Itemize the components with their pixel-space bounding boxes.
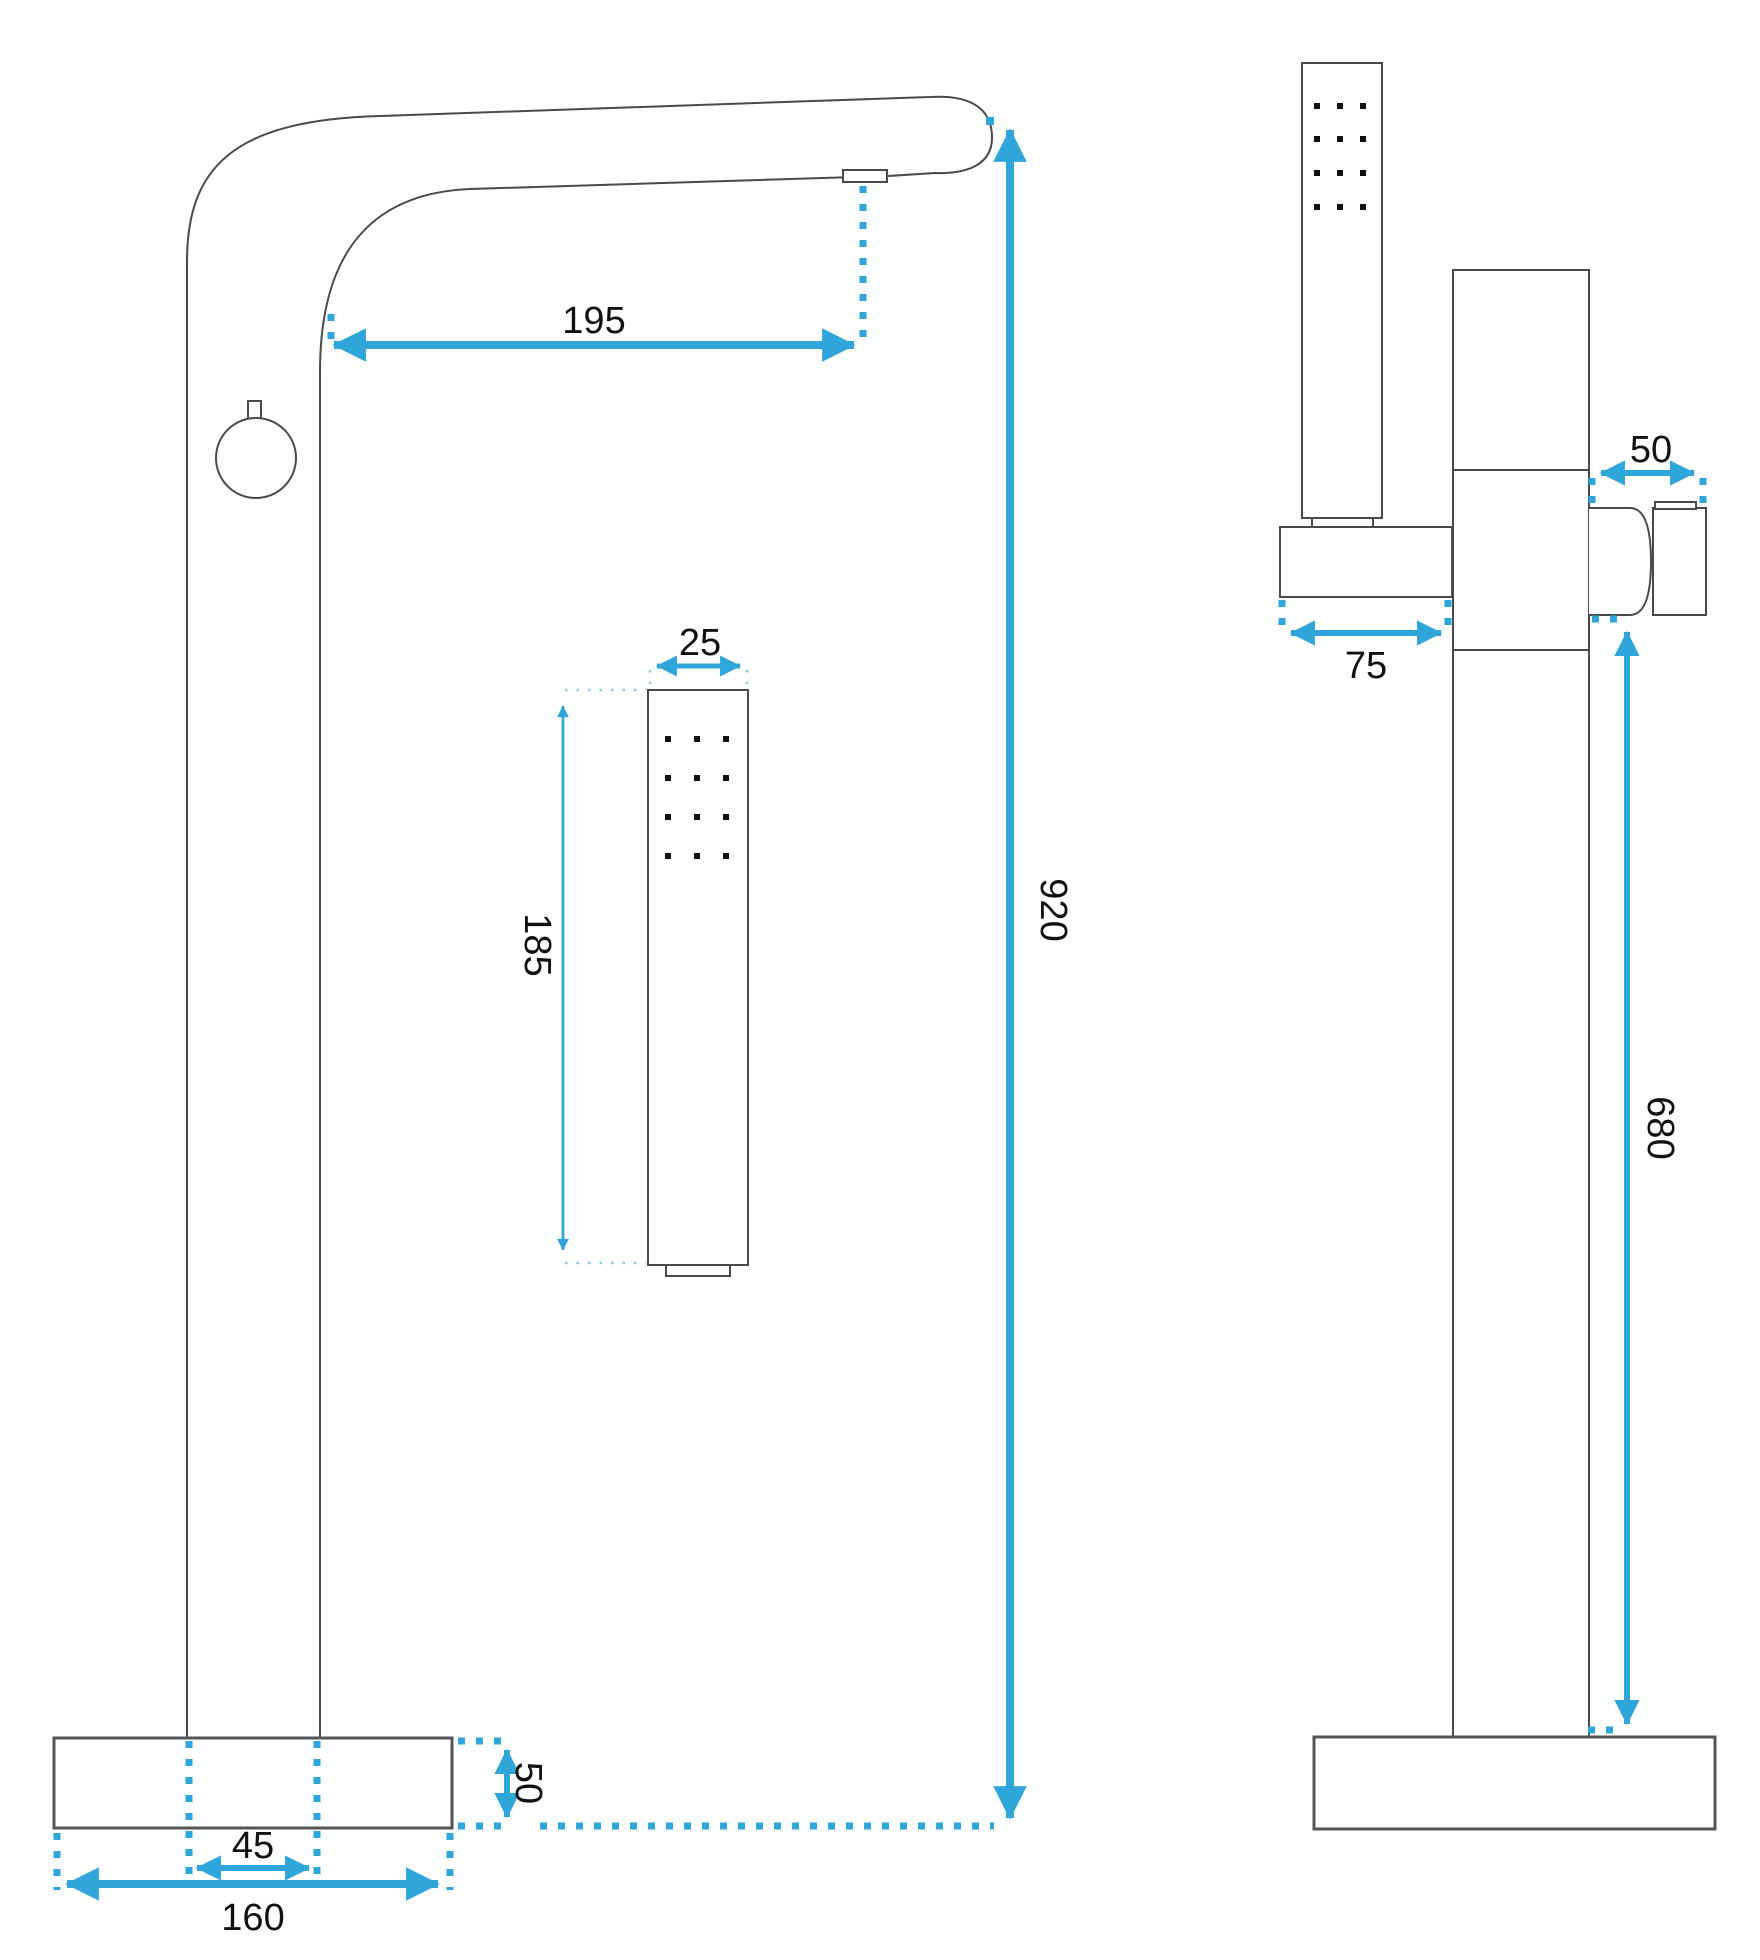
column-side-body [1453, 270, 1589, 1737]
dim-label-shower-width: 25 [679, 622, 721, 664]
spout-side [1589, 502, 1706, 615]
projection-spout-end-dot [986, 117, 994, 125]
dim-label-base-width: 160 [221, 1897, 284, 1939]
dim-label-shower-length: 185 [516, 913, 558, 976]
hand-shower-side [1302, 63, 1382, 528]
dim-label-spout-height: 680 [1639, 1096, 1681, 1159]
spout-aerator [843, 170, 887, 182]
dim-label-overall-height: 920 [1032, 878, 1074, 941]
shower-holder [1280, 527, 1452, 597]
dim-label-holder-length: 75 [1345, 645, 1387, 687]
dim-label-column-width: 45 [232, 1825, 274, 1867]
dim-overall-height: 920 [1010, 130, 1074, 1818]
handle-knob [216, 418, 296, 498]
spout-side-lip [1655, 502, 1696, 509]
spout-side-end [1653, 508, 1706, 615]
dim-base-width: 160 [67, 1884, 438, 1939]
dim-shower-width: 25 [657, 622, 740, 666]
dim-label-base-thickness: 50 [507, 1762, 549, 1804]
side-view: 50 75 680 [1280, 63, 1715, 1829]
front-view: 195 920 25 185 45 160 50 [54, 97, 1074, 1939]
dim-spout-reach: 195 [334, 300, 854, 345]
dim-column-width: 45 [197, 1825, 309, 1868]
floor-base-front [54, 1738, 452, 1828]
dim-holder-length: 75 [1291, 633, 1441, 687]
hand-shower-front [648, 690, 748, 1276]
dim-spout-depth: 50 [1601, 429, 1694, 473]
hand-shower-side-body [1302, 63, 1382, 518]
floor-base-side [1314, 1737, 1715, 1829]
dim-label-spout-depth: 50 [1630, 429, 1672, 471]
faucet-dimension-drawing: 195 920 25 185 45 160 50 [0, 0, 1760, 1960]
dim-base-thickness: 50 [507, 1750, 549, 1817]
dim-spout-height: 680 [1627, 632, 1681, 1724]
technical-drawing-canvas: 195 920 25 185 45 160 50 [0, 0, 1760, 1960]
hand-shower-nozzle [666, 1265, 730, 1276]
dim-shower-length: 185 [516, 706, 563, 1250]
column-side [1453, 270, 1589, 1737]
dim-label-spout-reach: 195 [562, 300, 625, 342]
spout-side-body [1589, 508, 1651, 615]
